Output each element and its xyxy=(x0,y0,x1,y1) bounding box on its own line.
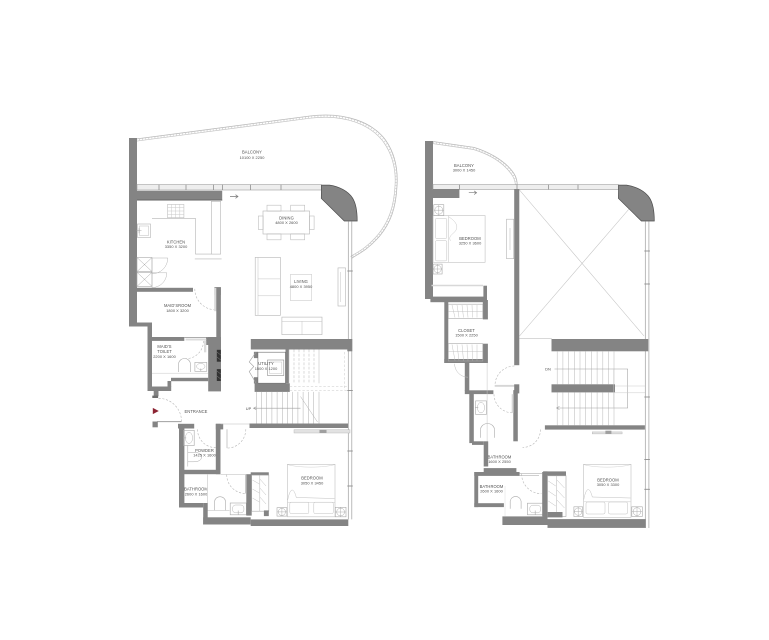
svg-text:3350 X 3200: 3350 X 3200 xyxy=(165,244,188,249)
svg-text:3250 X 3600: 3250 X 3600 xyxy=(459,240,482,245)
svg-text:2600 X 1600: 2600 X 1600 xyxy=(480,489,503,494)
svg-text:DN: DN xyxy=(545,366,551,371)
svg-text:1800 X 3200: 1800 X 3200 xyxy=(166,308,189,313)
svg-text:2600 X 1600: 2600 X 1600 xyxy=(185,491,208,496)
svg-text:2200 X 1600: 2200 X 1600 xyxy=(153,354,176,359)
svg-text:3000 X 1450: 3000 X 1450 xyxy=(453,168,476,173)
svg-text:1425 X 1600: 1425 X 1600 xyxy=(193,452,216,457)
svg-text:3050 X 3450: 3050 X 3450 xyxy=(301,480,324,485)
svg-text:4800 X 3950: 4800 X 3950 xyxy=(290,284,313,289)
svg-text:10100 X 2250: 10100 X 2250 xyxy=(240,155,266,160)
svg-text:ENTRANCE: ENTRANCE xyxy=(185,409,208,414)
svg-text:1500 X 1200: 1500 X 1200 xyxy=(255,366,278,371)
svg-text:UP: UP xyxy=(246,406,252,411)
svg-text:1500 X 2250: 1500 X 2250 xyxy=(455,333,478,338)
svg-text:1600 X 2550: 1600 X 2550 xyxy=(488,459,511,464)
svg-text:3050 X 3300: 3050 X 3300 xyxy=(597,482,620,487)
svg-text:4800 X 2600: 4800 X 2600 xyxy=(275,220,298,225)
